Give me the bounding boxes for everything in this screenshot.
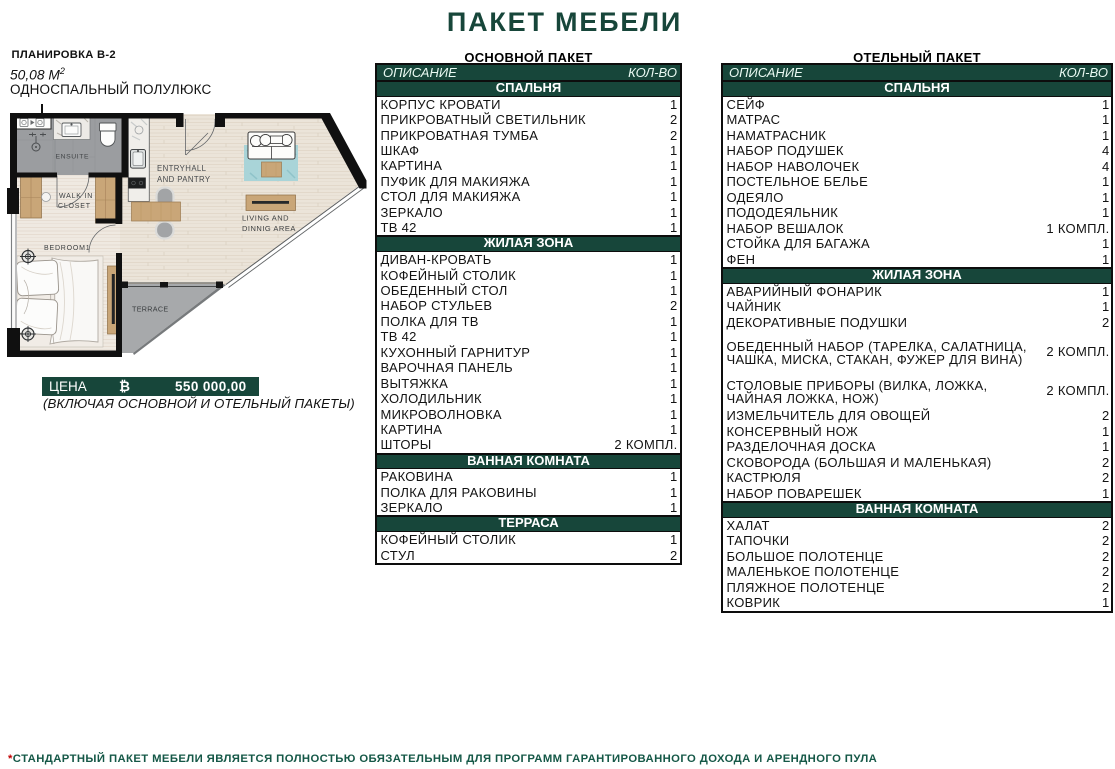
svg-text:AND PANTRY: AND PANTRY xyxy=(157,175,211,184)
svg-text:DINNIG AREA: DINNIG AREA xyxy=(242,224,296,233)
svg-text:LIVING AND: LIVING AND xyxy=(242,214,289,223)
svg-text:BEDROOM1: BEDROOM1 xyxy=(44,245,90,252)
svg-text:ENTRYHALL: ENTRYHALL xyxy=(157,164,207,173)
svg-text:ENSUITE: ENSUITE xyxy=(56,154,90,161)
svg-text:WALK IN: WALK IN xyxy=(59,193,93,200)
svg-text:TERRACE: TERRACE xyxy=(132,305,168,314)
